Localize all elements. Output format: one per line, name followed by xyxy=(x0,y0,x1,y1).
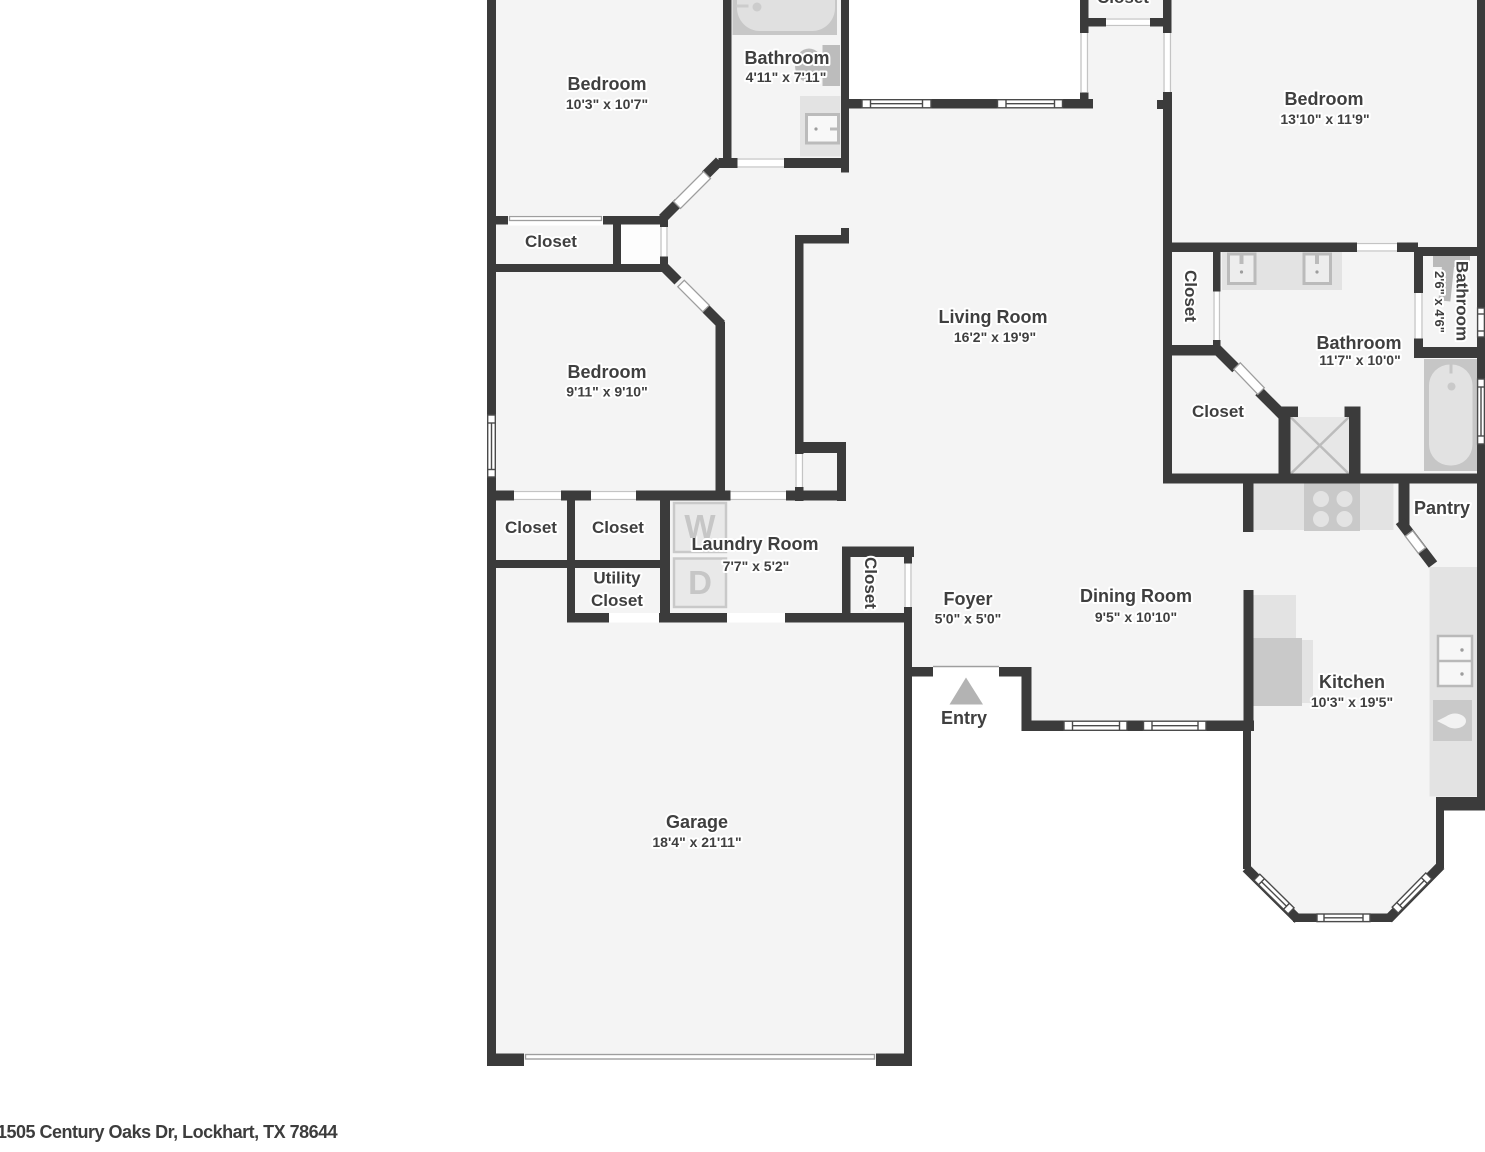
svg-text:1505 Century Oaks Dr, Lockhart: 1505 Century Oaks Dr, Lockhart, TX 78644 xyxy=(0,1122,338,1142)
svg-text:Pantry: Pantry xyxy=(1414,498,1470,518)
svg-text:Closet: Closet xyxy=(591,591,643,610)
svg-text:16'2" x 19'9": 16'2" x 19'9" xyxy=(954,329,1036,345)
svg-text:9'5" x 10'10": 9'5" x 10'10" xyxy=(1095,609,1177,625)
svg-text:Closet: Closet xyxy=(861,557,880,609)
svg-text:10'3" x 10'7": 10'3" x 10'7" xyxy=(566,96,648,112)
svg-text:Foyer: Foyer xyxy=(943,589,992,609)
svg-text:11'7" x 10'0": 11'7" x 10'0" xyxy=(1319,352,1400,368)
svg-text:Entry: Entry xyxy=(941,708,987,728)
svg-text:Dining Room: Dining Room xyxy=(1080,586,1192,606)
svg-text:Kitchen: Kitchen xyxy=(1319,672,1385,692)
svg-text:13'10" x 11'9": 13'10" x 11'9" xyxy=(1280,111,1369,127)
svg-text:Bedroom: Bedroom xyxy=(567,362,646,382)
svg-text:Closet: Closet xyxy=(505,518,557,537)
svg-text:Bathroom: Bathroom xyxy=(1453,261,1472,341)
svg-text:Closet: Closet xyxy=(1192,402,1244,421)
svg-text:Closet: Closet xyxy=(1181,270,1200,322)
svg-text:Bathroom: Bathroom xyxy=(745,48,830,68)
svg-text:Closet: Closet xyxy=(1097,0,1149,7)
svg-text:4'11" x 7'11": 4'11" x 7'11" xyxy=(746,69,827,85)
svg-text:Utility: Utility xyxy=(593,569,641,588)
svg-text:18'4" x 21'11": 18'4" x 21'11" xyxy=(652,834,741,850)
svg-text:10'3" x 19'5": 10'3" x 19'5" xyxy=(1311,694,1393,710)
svg-text:Garage: Garage xyxy=(666,812,728,832)
svg-text:Closet: Closet xyxy=(592,518,644,537)
svg-text:Living Room: Living Room xyxy=(939,307,1048,327)
svg-text:Bedroom: Bedroom xyxy=(567,74,646,94)
svg-text:D: D xyxy=(688,564,712,601)
svg-text:Closet: Closet xyxy=(525,232,577,251)
svg-text:Bedroom: Bedroom xyxy=(1284,89,1363,109)
svg-text:W: W xyxy=(684,508,716,545)
svg-text:2'6" x 4'6": 2'6" x 4'6" xyxy=(1432,271,1447,333)
svg-text:5'0" x 5'0": 5'0" x 5'0" xyxy=(935,611,1002,627)
svg-text:9'11" x 9'10": 9'11" x 9'10" xyxy=(566,384,647,400)
svg-text:7'7" x 5'2": 7'7" x 5'2" xyxy=(723,558,790,574)
svg-text:Bathroom: Bathroom xyxy=(1317,333,1402,353)
